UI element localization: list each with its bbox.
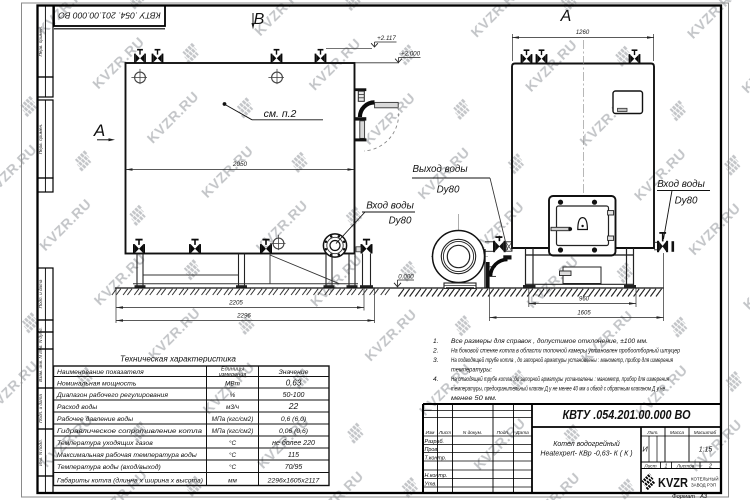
svg-text:Выход воды: Выход воды xyxy=(412,164,468,175)
svg-text:температуры, предохранительный: температуры, предохранительный клапан Д … xyxy=(451,385,665,393)
svg-text:4.: 4. xyxy=(433,376,439,383)
svg-text:Масса: Масса xyxy=(670,430,685,436)
svg-text:Подп.: Подп. xyxy=(497,430,510,436)
svg-text:Дата: Дата xyxy=(515,430,529,436)
svg-text:A: A xyxy=(560,8,572,25)
svg-text:МВт: МВт xyxy=(225,380,241,387)
svg-text:Dy80: Dy80 xyxy=(389,216,412,227)
svg-text:°С: °С xyxy=(229,439,237,447)
svg-text:менее 50 мм.: менее 50 мм. xyxy=(451,395,497,402)
svg-text:Dy80: Dy80 xyxy=(437,185,460,196)
svg-text:Гидравлическое сопротивление к: Гидравлическое сопротивление котла xyxy=(57,427,202,435)
svg-text:Подп. и дата: Подп. и дата xyxy=(38,394,43,423)
svg-text:50-100: 50-100 xyxy=(283,392,305,399)
svg-text:N докум.: N докум. xyxy=(463,430,482,436)
svg-text:Масштаб: Масштаб xyxy=(694,430,717,436)
svg-text:Значение: Значение xyxy=(279,369,309,376)
svg-text:Взам. инв. N: Взам. инв. N xyxy=(38,354,43,381)
svg-text:KVZR: KVZR xyxy=(658,475,689,490)
svg-text:0,63: 0,63 xyxy=(286,378,302,387)
svg-text:Лист: Лист xyxy=(438,430,451,436)
svg-text:Температура уходящих газов: Температура уходящих газов xyxy=(57,439,153,447)
svg-text:1: 1 xyxy=(665,463,668,469)
svg-text:960: 960 xyxy=(579,296,590,302)
svg-text:МПа (кгс/см2): МПа (кгс/см2) xyxy=(212,416,254,423)
svg-text:Разраб.: Разраб. xyxy=(425,439,445,445)
svg-text:Формат: Формат xyxy=(672,494,695,500)
svg-text:2.: 2. xyxy=(432,348,439,355)
svg-text:1605: 1605 xyxy=(577,310,591,316)
svg-text:°С: °С xyxy=(229,451,237,459)
svg-text:МПа (кгс/см2): МПа (кгс/см2) xyxy=(212,428,254,435)
svg-text:ЗАВОД РЭП: ЗАВОД РЭП xyxy=(691,483,716,488)
svg-text:измерения: измерения xyxy=(219,372,247,378)
svg-text:Вход воды: Вход воды xyxy=(366,201,414,212)
svg-text:2050: 2050 xyxy=(232,161,248,168)
svg-text:A: A xyxy=(93,121,105,140)
svg-text:+2.000: +2.000 xyxy=(401,51,421,58)
svg-text:Перв. примен.: Перв. примен. xyxy=(38,26,43,57)
svg-text:3.: 3. xyxy=(433,357,439,364)
svg-text:22: 22 xyxy=(288,401,299,411)
svg-text:На отводящей трубе котла ,до з: На отводящей трубе котла ,до запорной ар… xyxy=(451,375,669,383)
svg-text:Температура воды (вход/выход): Температура воды (вход/выход) xyxy=(57,463,161,471)
svg-text:Расход воды: Расход воды xyxy=(57,403,97,411)
svg-text:А3: А3 xyxy=(699,494,708,500)
svg-text:0,6 (6,0): 0,6 (6,0) xyxy=(281,416,306,423)
svg-text:Пров.: Пров. xyxy=(425,447,439,453)
svg-text:1260: 1260 xyxy=(576,30,590,36)
svg-text:И: И xyxy=(642,445,648,454)
svg-text:Подп. и дата: Подп. и дата xyxy=(38,279,43,308)
svg-text:Техническая характеристика: Техническая характеристика xyxy=(120,355,236,364)
svg-text:не более 220: не более 220 xyxy=(272,439,315,447)
svg-text:Рабочее давление воды: Рабочее давление воды xyxy=(57,415,133,423)
svg-text:Все размеры для справок , допу: Все размеры для справок , допустимое отк… xyxy=(451,337,648,345)
svg-text:Диапазон рабочего регулировани: Диапазон рабочего регулирования xyxy=(56,391,168,399)
svg-text:На подводящей трубе котла , д: На подводящей трубе котла , до запорной … xyxy=(451,356,673,364)
svg-text:0,06 (0,6): 0,06 (0,6) xyxy=(279,428,308,435)
svg-text:115: 115 xyxy=(288,452,299,459)
svg-text:Листов: Листов xyxy=(676,463,695,469)
svg-text:°С: °С xyxy=(229,463,237,471)
svg-text:1:15: 1:15 xyxy=(699,447,713,454)
svg-text:Номинальная мощность: Номинальная мощность xyxy=(57,380,137,387)
svg-text:2: 2 xyxy=(708,463,712,469)
svg-text:Максимальная рабочая температу: Максимальная рабочая температура воды xyxy=(57,451,197,459)
svg-text:Лист: Лист xyxy=(643,463,656,469)
svg-text:Н.контр.: Н.контр. xyxy=(425,473,448,479)
svg-text:+2.117: +2.117 xyxy=(377,35,396,42)
svg-text:Heatexpert- КВр -0,63- К ( К ): Heatexpert- КВр -0,63- К ( К ) xyxy=(540,451,632,458)
svg-text:см. п.2: см. п.2 xyxy=(264,108,297,120)
svg-text:КОТЕЛЬНЫЙ: КОТЕЛЬНЫЙ xyxy=(691,477,719,482)
svg-text:Наименование показателя: Наименование показателя xyxy=(57,369,144,376)
svg-text:Котел водогрейный: Котел водогрейный xyxy=(553,440,620,448)
svg-text:%: % xyxy=(230,392,236,399)
svg-text:Инв. N подл.: Инв. N подл. xyxy=(38,439,43,466)
svg-text:Лит.: Лит. xyxy=(646,430,658,436)
svg-text:КВТУ .054.201.00.000 ВО: КВТУ .054.201.00.000 ВО xyxy=(563,408,691,422)
svg-text:мм: мм xyxy=(228,477,237,484)
svg-text:На боковой стенке котла в обла: На боковой стенке котла в области топочн… xyxy=(451,347,680,355)
svg-text:м3/ч: м3/ч xyxy=(226,404,240,411)
svg-text:B: B xyxy=(254,11,265,28)
svg-text:1.: 1. xyxy=(433,338,439,345)
svg-text:температуры:: температуры: xyxy=(451,367,492,374)
svg-text:Вход воды: Вход воды xyxy=(657,179,705,190)
svg-text:70/95: 70/95 xyxy=(285,464,303,471)
svg-text:Габариты котла (длинна х ширин: Габариты котла (длинна х ширина х высота… xyxy=(57,476,203,484)
svg-text:Dy80: Dy80 xyxy=(675,196,698,207)
svg-text:2296: 2296 xyxy=(236,312,251,319)
svg-text:Изм: Изм xyxy=(426,430,436,436)
svg-text:2296х1605х2117: 2296х1605х2117 xyxy=(267,477,320,484)
svg-text:Инв. N дубл.: Инв. N дубл. xyxy=(38,327,43,354)
svg-text:Перв. примен.: Перв. примен. xyxy=(38,124,43,155)
svg-text:КВТУ .054. 201.00.000 ВО: КВТУ .054. 201.00.000 ВО xyxy=(58,10,161,20)
svg-text:Т.контр.: Т.контр. xyxy=(425,455,447,461)
svg-text:2205: 2205 xyxy=(228,299,243,306)
svg-text:Утв.: Утв. xyxy=(424,481,437,487)
svg-text:0.000: 0.000 xyxy=(398,273,414,280)
